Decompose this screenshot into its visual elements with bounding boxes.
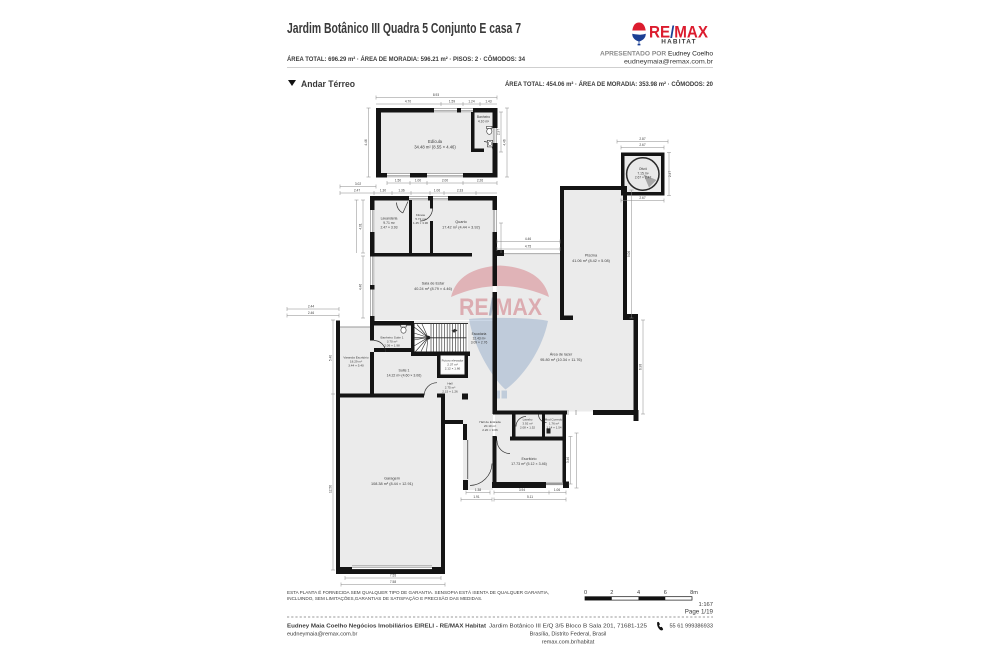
- svg-text:55 61 999386933: 55 61 999386933: [669, 624, 713, 630]
- svg-text:2.47: 2.47: [354, 189, 360, 193]
- svg-text:1.91: 1.91: [473, 495, 479, 499]
- svg-text:4.46: 4.46: [359, 284, 363, 290]
- svg-text:3.09 × 2.76: 3.09 × 2.76: [471, 341, 488, 345]
- svg-text:Área de lazer: Área de lazer: [550, 353, 573, 357]
- svg-text:8m: 8m: [690, 590, 698, 596]
- svg-text:1.30: 1.30: [380, 189, 386, 193]
- svg-text:3.02: 3.02: [355, 182, 361, 186]
- svg-text:2.47 × 3.93: 2.47 × 3.93: [380, 226, 397, 230]
- svg-text:Brasília, Distrito Federal, Br: Brasília, Distrito Federal, Brasil: [530, 632, 607, 638]
- svg-text:6: 6: [664, 590, 667, 596]
- svg-text:Escritório: Escritório: [522, 457, 537, 461]
- svg-text:95.80 m² (10.34 × 11.76): 95.80 m² (10.34 × 11.76): [540, 358, 582, 362]
- svg-text:Piscina: Piscina: [585, 254, 598, 258]
- svg-text:2.08 × 1.52: 2.08 × 1.52: [520, 426, 535, 430]
- svg-text:7.58: 7.58: [390, 580, 396, 584]
- svg-text:3.94: 3.94: [519, 488, 525, 492]
- svg-text:2.67 × 2.47: 2.67 × 2.47: [635, 176, 652, 180]
- svg-text:4.46: 4.46: [503, 139, 507, 145]
- svg-text:2.12 × 1.66: 2.12 × 1.66: [445, 367, 461, 371]
- svg-text:2.87: 2.87: [639, 137, 645, 141]
- svg-text:4.75: 4.75: [525, 245, 531, 249]
- svg-text:2.15 × 1.26: 2.15 × 1.26: [442, 390, 458, 394]
- svg-text:40.24 m² (8.79 × 4.46): 40.24 m² (8.79 × 4.46): [414, 287, 452, 291]
- svg-text:eudneymaia@remax.com.br: eudneymaia@remax.com.br: [287, 632, 357, 638]
- svg-text:2: 2: [610, 590, 613, 596]
- svg-text:Page 1/19: Page 1/19: [685, 609, 714, 616]
- svg-text:41.06 m² (8.42 × 5.08): 41.06 m² (8.42 × 5.08): [572, 259, 610, 263]
- svg-text:APRESENTADO POR Eudney Coelho: APRESENTADO POR Eudney Coelho: [600, 51, 713, 58]
- svg-text:Jardim Botânico III E/Q 3/5 Bl: Jardim Botânico III E/Q 3/5 Bloco B Sala…: [489, 624, 647, 630]
- svg-text:1.43: 1.43: [485, 100, 491, 104]
- svg-text:Andar Térreo: Andar Térreo: [301, 79, 355, 90]
- svg-text:1.24: 1.24: [468, 100, 474, 104]
- svg-text:4: 4: [637, 590, 640, 596]
- svg-text:4.70: 4.70: [405, 100, 411, 104]
- svg-text:5.11: 5.11: [527, 495, 533, 499]
- svg-text:2.67: 2.67: [639, 196, 645, 200]
- svg-text:2.00: 2.00: [442, 179, 448, 183]
- svg-text:1:167: 1:167: [698, 602, 713, 608]
- svg-text:2.33: 2.33: [457, 189, 463, 193]
- svg-text:Lavanderia: Lavanderia: [381, 217, 398, 221]
- svg-text:Quarto: Quarto: [455, 220, 467, 224]
- svg-text:108.38 m² (8.44 × 12.91): 108.38 m² (8.44 × 12.91): [371, 482, 414, 486]
- svg-text:2.46: 2.46: [308, 311, 314, 315]
- svg-text:2.20 × 9.66: 2.20 × 9.66: [482, 428, 498, 432]
- svg-text:1.36: 1.36: [398, 189, 404, 193]
- svg-text:2.09 × 1.98: 2.09 × 1.98: [384, 344, 400, 348]
- svg-text:17.73 m² (5.12 × 3.46): 17.73 m² (5.12 × 3.46): [511, 462, 547, 466]
- svg-text:9.06: 9.06: [627, 251, 631, 257]
- svg-text:9.71 m²: 9.71 m²: [383, 221, 395, 225]
- svg-text:4.46: 4.46: [525, 237, 531, 241]
- svg-text:2.97: 2.97: [497, 129, 501, 135]
- svg-text:Jardim Botânico III Quadra 5 C: Jardim Botânico III Quadra 5 Conjunto E …: [287, 21, 521, 37]
- svg-text:Eudney Maia Coelho Negócios Im: Eudney Maia Coelho Negócios Imobiliários…: [287, 624, 486, 630]
- svg-text:4.01: 4.01: [359, 223, 363, 229]
- svg-text:14.22 m² (4.60 × 3.06): 14.22 m² (4.60 × 3.06): [387, 374, 422, 378]
- svg-text:2.47: 2.47: [668, 171, 672, 177]
- svg-text:Garagem: Garagem: [384, 477, 400, 481]
- svg-text:1.00: 1.00: [415, 179, 421, 183]
- svg-text:Sala de Estar: Sala de Estar: [422, 282, 446, 286]
- svg-text:ÁREA TOTAL: 696.29 m² · ÁREA D: ÁREA TOTAL: 696.29 m² · ÁREA DE MORADIA:…: [287, 54, 525, 63]
- svg-text:3.44 × 5.40: 3.44 × 5.40: [348, 364, 364, 368]
- svg-text:1.06: 1.06: [554, 488, 560, 492]
- svg-text:1.59: 1.59: [449, 100, 455, 104]
- svg-text:34.48 m² (8.55 × 4.46): 34.48 m² (8.55 × 4.46): [414, 145, 456, 150]
- svg-text:HABITAT: HABITAT: [661, 39, 697, 46]
- svg-text:2.67: 2.67: [639, 143, 645, 147]
- svg-text:7.55: 7.55: [390, 574, 396, 578]
- svg-text:ESTA PLANTA É FORNECIDA SEM QU: ESTA PLANTA É FORNECIDA SEM QUALQUER TIP…: [287, 589, 549, 595]
- svg-text:2.26: 2.26: [477, 179, 483, 183]
- svg-text:1.50: 1.50: [395, 179, 401, 183]
- svg-text:6.98: 6.98: [639, 364, 643, 370]
- svg-text:1.38: 1.38: [475, 488, 481, 492]
- svg-text:8.93: 8.93: [433, 93, 439, 97]
- svg-text:4.46: 4.46: [364, 139, 368, 145]
- svg-text:1.06: 1.06: [434, 189, 440, 193]
- svg-text:12.56: 12.56: [329, 485, 333, 493]
- svg-text:2.44: 2.44: [308, 305, 314, 309]
- svg-text:5.40: 5.40: [329, 355, 333, 361]
- svg-text:3.46: 3.46: [566, 457, 570, 463]
- svg-text:INCLUINDO, SEM LIMITAÇÕES,GARA: INCLUINDO, SEM LIMITAÇÕES,GARANTIAS DE S…: [287, 595, 482, 601]
- svg-text:Suite 1: Suite 1: [399, 369, 410, 373]
- svg-text:17.42 m² (4.44 × 3.92): 17.42 m² (4.44 × 3.92): [442, 226, 480, 230]
- svg-text:4.10 m²: 4.10 m²: [478, 119, 490, 123]
- svg-text:0: 0: [584, 590, 587, 596]
- svg-text:1.45 × 3.96: 1.45 × 3.96: [413, 221, 428, 225]
- svg-text:RE/MAX: RE/MAX: [459, 294, 542, 321]
- svg-text:remax.com.br/habitat: remax.com.br/habitat: [542, 640, 595, 646]
- svg-text:ÁREA TOTAL: 454.06 m² · ÁREA D: ÁREA TOTAL: 454.06 m² · ÁREA DE MORADIA:…: [505, 79, 713, 88]
- svg-text:eudneymaia@remax.com.br: eudneymaia@remax.com.br: [624, 59, 714, 66]
- svg-text:1.14 × 1.54: 1.14 × 1.54: [546, 426, 561, 430]
- svg-text:Edícula: Edícula: [428, 139, 443, 144]
